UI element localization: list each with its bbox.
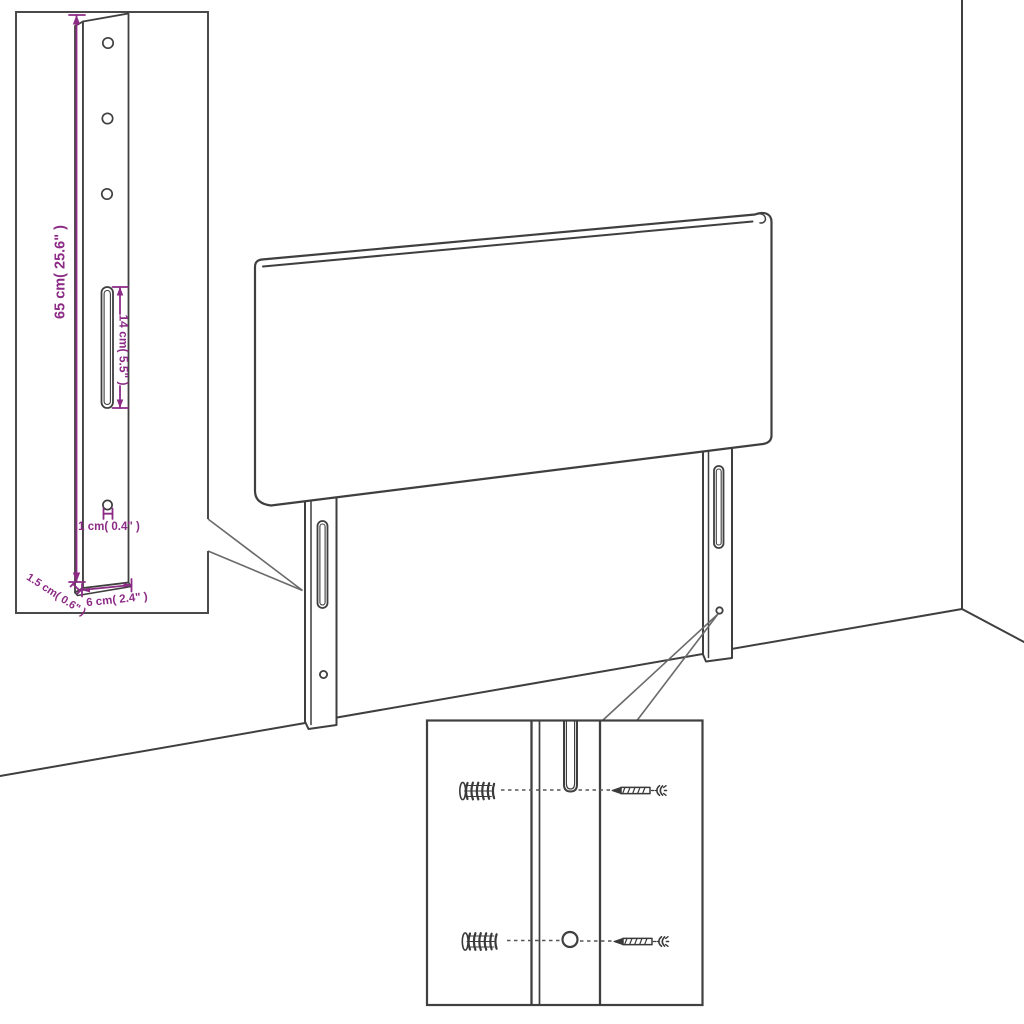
callout-wedge-left — [208, 519, 303, 591]
leg-height-label: 65 cm( 25.6" ) — [52, 225, 68, 319]
left-leg-slot — [318, 521, 328, 608]
right-leg — [703, 425, 732, 662]
fastener-detail-box — [427, 721, 703, 1006]
right-leg-hole — [716, 607, 722, 613]
callout-wedge-bottom — [603, 614, 719, 721]
headboard-panel — [255, 213, 772, 506]
left-leg — [305, 464, 337, 729]
diagram-canvas: 65 cm( 25.6" ) 14 cm( 5.5" ) 1 cm( 0.4" … — [0, 0, 1024, 1024]
dim-arrow — [73, 15, 80, 25]
wall-anchor-icon — [462, 933, 496, 950]
leg-detail-box: 65 cm( 25.6" ) 14 cm( 5.5" ) 1 cm( 0.4" … — [16, 12, 208, 619]
leg-strip-hole — [563, 932, 578, 947]
leg-width-label: 6 cm( 2.4" ) — [86, 591, 149, 609]
detail-leg-hole-1 — [103, 38, 113, 48]
right-leg-slot — [714, 466, 724, 548]
headboard-panel-face — [255, 213, 772, 506]
floor-line-right — [962, 609, 1024, 642]
detail-leg-hole-2 — [102, 113, 112, 123]
callout-line — [208, 551, 303, 591]
headboard-diagram: 65 cm( 25.6" ) 14 cm( 5.5" ) 1 cm( 0.4" … — [0, 0, 1024, 1024]
slot-length-label: 14 cm( 5.5" ) — [116, 314, 130, 385]
left-leg-hole — [320, 671, 327, 678]
detail-leg-hole-3 — [102, 189, 112, 199]
detail-leg-slot — [102, 287, 114, 408]
hole-diameter-label: 1 cm( 0.4" ) — [78, 521, 140, 533]
callout-line — [208, 519, 303, 591]
wall-anchor-icon — [460, 782, 494, 799]
callout-line — [637, 614, 718, 721]
callout-line — [603, 614, 719, 721]
